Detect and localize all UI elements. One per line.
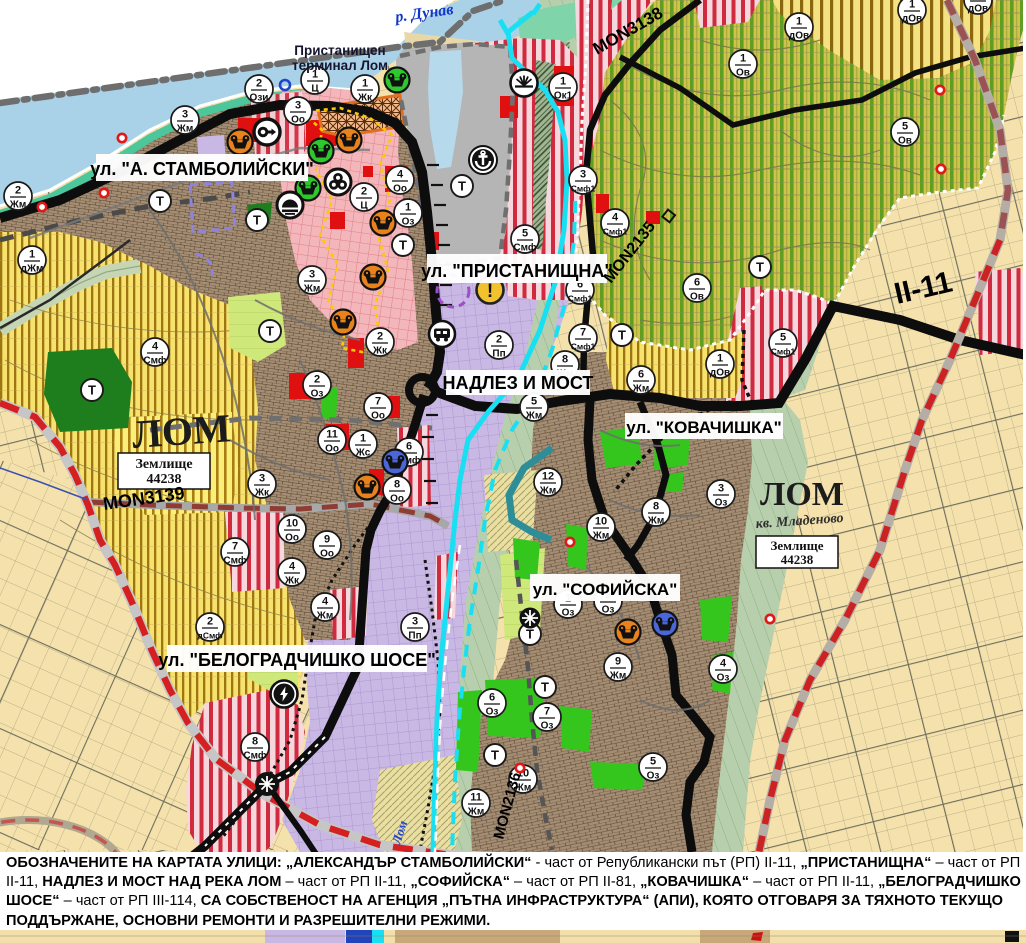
svg-text:10: 10	[286, 518, 298, 530]
svg-text:Смф1: Смф1	[568, 294, 593, 304]
svg-text:Ов: Ов	[736, 68, 750, 79]
svg-text:Оз: Оз	[311, 389, 324, 400]
svg-text:Оз: Оз	[715, 498, 728, 509]
svg-text:9: 9	[615, 656, 621, 668]
svg-text:дОв: дОв	[789, 31, 809, 42]
svg-text:1: 1	[360, 433, 366, 445]
svg-text:Жм: Жм	[303, 284, 320, 295]
svg-text:11: 11	[470, 792, 482, 804]
svg-text:ул. "БЕЛОГРАДЧИШКО ШОСЕ": ул. "БЕЛОГРАДЧИШКО ШОСЕ"	[158, 650, 436, 670]
svg-text:Т: Т	[458, 179, 466, 194]
svg-text:Жм: Жм	[176, 124, 193, 135]
svg-text:1: 1	[29, 249, 35, 261]
svg-text:ул. "СОФИЙСКА": ул. "СОФИЙСКА"	[533, 580, 678, 599]
svg-text:6: 6	[638, 369, 644, 381]
svg-text:4: 4	[720, 658, 727, 670]
svg-text:7: 7	[375, 396, 381, 408]
svg-text:11: 11	[326, 429, 338, 441]
svg-text:7: 7	[232, 541, 238, 553]
svg-text:4: 4	[397, 169, 404, 181]
svg-text:1: 1	[362, 78, 368, 90]
svg-text:Смф1: Смф1	[571, 342, 596, 352]
svg-text:2: 2	[361, 186, 367, 198]
svg-text:Жк: Жк	[284, 576, 300, 587]
svg-text:Т: Т	[399, 238, 407, 253]
svg-text:Т: Т	[541, 680, 549, 695]
svg-text:3: 3	[309, 269, 315, 281]
svg-text:Т: Т	[88, 383, 96, 398]
svg-text:1: 1	[740, 53, 746, 65]
svg-text:7: 7	[580, 327, 586, 339]
svg-text:Жм: Жм	[316, 611, 333, 622]
svg-text:Оо: Оо	[393, 184, 407, 195]
svg-text:5: 5	[902, 121, 908, 133]
svg-text:Пп: Пп	[408, 631, 421, 642]
svg-text:ЛОМ: ЛОМ	[760, 476, 844, 513]
svg-text:дОв: дОв	[710, 368, 730, 379]
svg-text:4: 4	[152, 341, 159, 353]
svg-text:Жк: Жк	[357, 93, 373, 104]
svg-text:Жм: Жм	[632, 384, 649, 395]
svg-text:ул. "КОВАЧИШКА": ул. "КОВАЧИШКА"	[626, 418, 782, 437]
svg-text:Жм: Жм	[525, 411, 542, 422]
svg-text:1: 1	[796, 16, 802, 28]
svg-text:Пп: Пп	[492, 349, 505, 360]
svg-text:НАДЛЕЗ И МОСТ: НАДЛЕЗ И МОСТ	[443, 373, 594, 393]
svg-text:5: 5	[531, 396, 537, 408]
svg-text:Оз: Оз	[717, 673, 730, 684]
svg-text:3: 3	[182, 109, 188, 121]
svg-text:1: 1	[909, 0, 915, 11]
svg-text:Оз: Оз	[541, 721, 554, 732]
svg-text:2: 2	[314, 374, 320, 386]
svg-text:Жм: Жм	[647, 516, 664, 527]
svg-text:Смф1: Смф1	[571, 184, 596, 194]
svg-text:Ози: Ози	[250, 93, 269, 104]
svg-text:Т: Т	[491, 748, 499, 763]
svg-text:9: 9	[324, 534, 330, 546]
svg-text:1: 1	[405, 202, 411, 214]
svg-text:Жм: Жм	[539, 486, 556, 497]
svg-text:2: 2	[207, 616, 213, 628]
svg-text:2: 2	[15, 185, 21, 197]
svg-text:Жк: Жк	[372, 346, 388, 357]
svg-text:Т: Т	[756, 260, 764, 275]
svg-text:Смф: Смф	[143, 355, 166, 367]
svg-text:Оз: Оз	[562, 608, 575, 619]
svg-text:!: !	[487, 281, 493, 302]
svg-text:Смф: Смф	[513, 242, 536, 254]
svg-text:Жк: Жк	[254, 488, 270, 499]
svg-text:5: 5	[650, 756, 656, 768]
svg-text:1: 1	[560, 76, 566, 88]
svg-text:6: 6	[406, 441, 412, 453]
svg-text:4: 4	[612, 212, 619, 224]
svg-text:Жм: Жм	[609, 671, 626, 682]
svg-text:Ок1: Ок1	[554, 91, 573, 102]
svg-text:2: 2	[496, 334, 502, 346]
svg-text:1: 1	[975, 0, 981, 1]
svg-text:Оз: Оз	[602, 605, 615, 616]
svg-text:12: 12	[542, 471, 554, 483]
svg-text:3: 3	[580, 169, 586, 181]
svg-text:8: 8	[653, 501, 659, 513]
svg-text:Жм: Жм	[467, 807, 484, 818]
svg-text:8: 8	[252, 736, 258, 748]
svg-text:3: 3	[718, 483, 724, 495]
svg-text:Оо: Оо	[320, 549, 334, 560]
svg-text:Оз: Оз	[647, 771, 660, 782]
svg-text:Оо: Оо	[390, 494, 404, 505]
svg-text:Смф1: Смф1	[771, 347, 796, 357]
svg-text:8: 8	[562, 354, 568, 366]
svg-text:Оз: Оз	[486, 707, 499, 718]
svg-text:Оо: Оо	[325, 444, 339, 455]
svg-text:6: 6	[489, 692, 495, 704]
svg-text:4: 4	[289, 561, 296, 573]
svg-text:7: 7	[544, 706, 550, 718]
svg-text:Т: Т	[156, 194, 164, 209]
svg-text:Оо: Оо	[371, 411, 385, 422]
svg-text:дОв: дОв	[902, 14, 922, 25]
svg-text:5: 5	[522, 228, 528, 240]
svg-text:2: 2	[377, 331, 383, 343]
svg-text:Ц: Ц	[360, 201, 368, 212]
svg-text:ЛОМ: ЛОМ	[130, 405, 232, 457]
svg-text:дОв: дОв	[968, 4, 988, 15]
svg-text:Оо: Оо	[291, 115, 305, 126]
svg-text:Т: Т	[253, 213, 261, 228]
svg-text:Жм: Жм	[9, 200, 26, 211]
svg-text:дЖм: дЖм	[21, 264, 44, 275]
svg-text:5: 5	[780, 332, 786, 344]
svg-text:ул. "А. СТАМБОЛИЙСКИ": ул. "А. СТАМБОЛИЙСКИ"	[90, 158, 314, 179]
svg-text:Смф1: Смф1	[603, 227, 628, 237]
svg-text:Т: Т	[266, 324, 274, 339]
svg-text:Ов: Ов	[898, 136, 912, 147]
svg-text:4: 4	[322, 596, 329, 608]
svg-text:6: 6	[694, 277, 700, 289]
svg-text:Ов: Ов	[690, 292, 704, 303]
svg-text:1: 1	[717, 353, 723, 365]
svg-text:Жм: Жм	[592, 531, 609, 542]
svg-text:8: 8	[394, 479, 400, 491]
svg-text:Т: Т	[618, 328, 626, 343]
svg-text:ул. "ПРИСТАНИЩНА": ул. "ПРИСТАНИЩНА"	[421, 261, 613, 281]
svg-text:10: 10	[595, 516, 607, 528]
svg-text:3: 3	[295, 100, 301, 112]
svg-text:Т: Т	[526, 627, 534, 642]
svg-text:3: 3	[412, 616, 418, 628]
svg-text:дСмф: дСмф	[197, 631, 223, 641]
svg-text:2: 2	[256, 78, 262, 90]
svg-text:Смф: Смф	[243, 750, 266, 762]
svg-text:Смф: Смф	[223, 555, 246, 567]
svg-text:Жс: Жс	[355, 448, 371, 459]
svg-text:3: 3	[259, 473, 265, 485]
svg-text:Ц: Ц	[311, 84, 319, 95]
svg-text:Оо: Оо	[285, 533, 299, 544]
svg-text:Пристанищентерминал Лом: Пристанищентерминал Лом	[292, 43, 388, 73]
svg-text:Оз: Оз	[402, 217, 415, 228]
